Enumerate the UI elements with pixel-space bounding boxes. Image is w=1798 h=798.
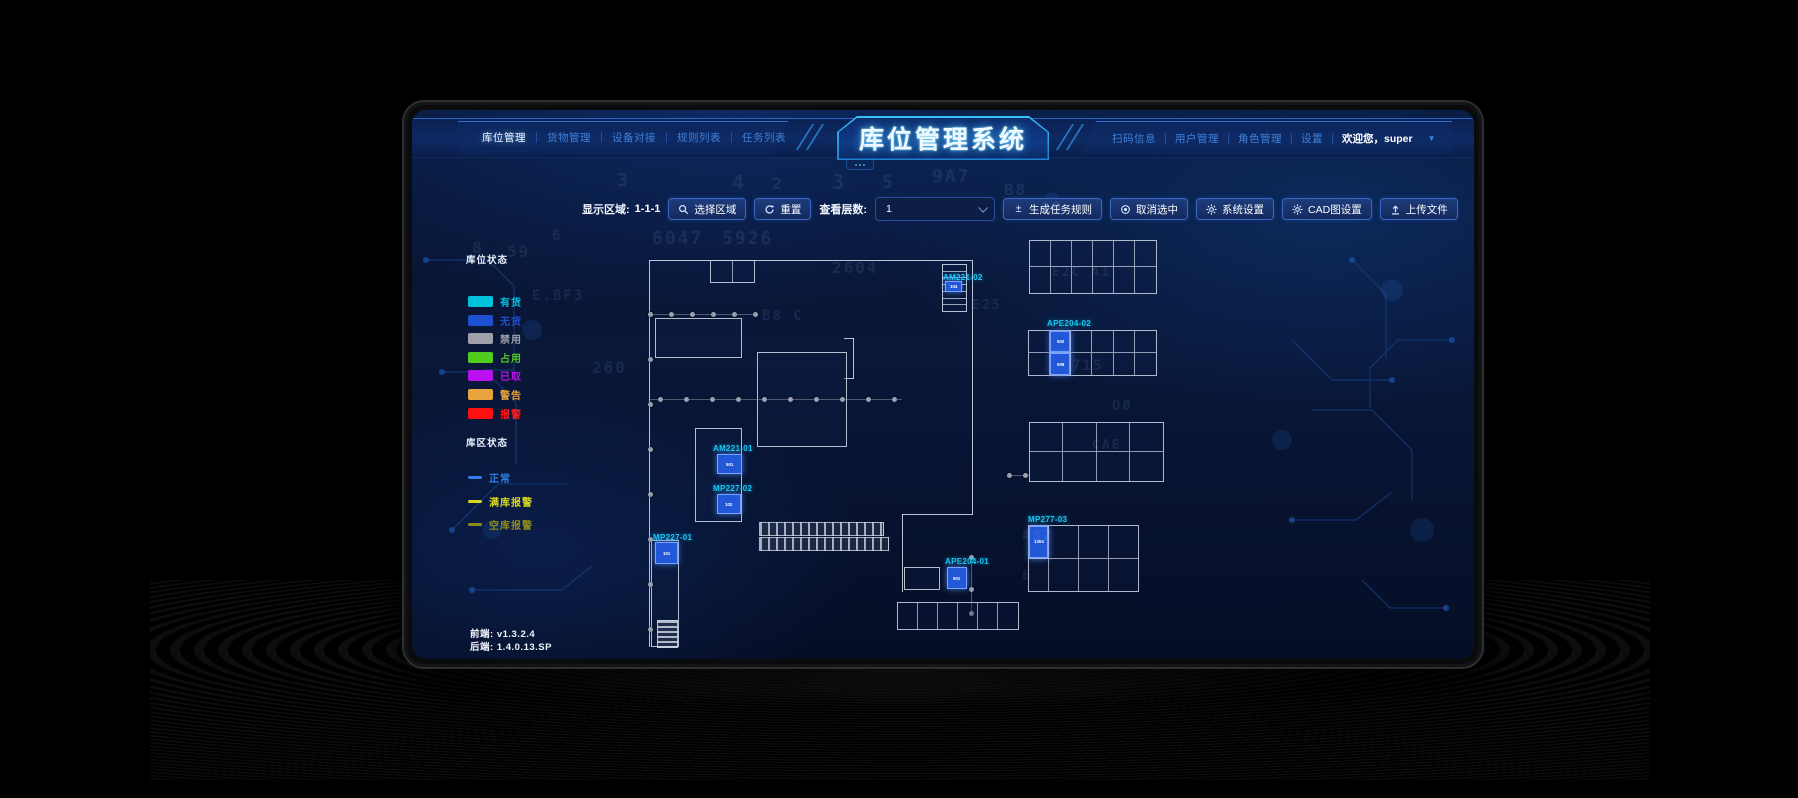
slot-cell-value: 102 bbox=[725, 502, 732, 507]
conveyor-node bbox=[1007, 473, 1012, 478]
rack-grid-mp277-03-cell[interactable] bbox=[1109, 559, 1138, 592]
rack-grid-mp277-03-cell[interactable] bbox=[1079, 559, 1109, 592]
highlighted-slot[interactable]: 102 bbox=[717, 494, 741, 514]
conveyor-line bbox=[650, 314, 755, 315]
monitor-frame: 库位管理货物管理设备对接规则列表任务列表 库位管理系统 扫码信息用户管理角色管理… bbox=[402, 100, 1484, 669]
rack-ladder-rung bbox=[943, 299, 966, 306]
highlighted-slot[interactable]: 101 bbox=[655, 542, 678, 564]
conveyor-node bbox=[710, 397, 715, 402]
rack-grid-east-cell[interactable] bbox=[1097, 452, 1130, 481]
conveyor-node bbox=[969, 587, 974, 592]
plan-wall bbox=[972, 260, 973, 514]
plan-wall bbox=[649, 260, 650, 647]
rack-grid-northeast-cell[interactable] bbox=[1030, 267, 1051, 293]
striped-rack bbox=[657, 620, 678, 648]
rack-grid-northeast-cell[interactable] bbox=[1114, 267, 1135, 293]
conveyor-node bbox=[669, 312, 674, 317]
page-background: 库位管理货物管理设备对接规则列表任务列表 库位管理系统 扫码信息用户管理角色管理… bbox=[0, 0, 1798, 798]
striped-rack bbox=[759, 522, 884, 536]
rack-grid-east bbox=[1029, 422, 1164, 482]
rack-grid-south-cell[interactable] bbox=[918, 603, 938, 629]
rack-grid-east-cell[interactable] bbox=[1097, 423, 1130, 452]
slot-cell-value: 901 bbox=[953, 576, 960, 581]
location-label: MP227-02 bbox=[713, 484, 752, 493]
rack-grid-east-cell[interactable] bbox=[1030, 452, 1063, 481]
rack-grid-northeast-cell[interactable] bbox=[1072, 241, 1093, 267]
conveyor-node bbox=[648, 402, 653, 407]
conveyor-node bbox=[648, 627, 653, 632]
location-label: APE204-01 bbox=[945, 557, 989, 566]
rack-grid-mp277-03-cell[interactable] bbox=[1049, 526, 1079, 559]
backend-version-label: 后端: bbox=[470, 642, 494, 653]
rack-grid-ape204-02-cell[interactable] bbox=[1071, 331, 1092, 353]
conveyor-node bbox=[684, 397, 689, 402]
rack-grid-ape204-02-cell[interactable]: 508 bbox=[1050, 353, 1071, 375]
slot-cell-value: 501 bbox=[726, 462, 733, 467]
rack-grid-mp277-03-cell[interactable] bbox=[1079, 526, 1109, 559]
floor-plan: 5025081304AM221-02APE204-02AM221-01MP227… bbox=[412, 110, 1474, 659]
conveyor-node bbox=[736, 397, 741, 402]
slot-cell-value: 508 bbox=[1057, 362, 1064, 367]
rack-grid-south-cell[interactable] bbox=[958, 603, 978, 629]
rack-grid-northeast-cell[interactable] bbox=[1051, 241, 1072, 267]
location-label: APE204-02 bbox=[1047, 319, 1091, 328]
conveyor-node bbox=[732, 312, 737, 317]
slot-cell-value: 502 bbox=[1057, 339, 1064, 344]
location-label: AM221-01 bbox=[713, 444, 753, 453]
striped-rack bbox=[759, 537, 889, 551]
highlighted-slot[interactable]: 901 bbox=[947, 567, 967, 589]
rack-grid-northeast-cell[interactable] bbox=[1135, 267, 1156, 293]
conveyor-node bbox=[892, 397, 897, 402]
conveyor-node bbox=[711, 312, 716, 317]
conveyor-node bbox=[648, 492, 653, 497]
rack-ladder-rung bbox=[943, 265, 966, 272]
rack-grid-south-cell[interactable] bbox=[978, 603, 998, 629]
location-label: MP277-03 bbox=[1028, 515, 1067, 524]
rack-grid-ape204-02-cell[interactable] bbox=[1071, 353, 1092, 375]
conveyor-node bbox=[840, 397, 845, 402]
plan-wall bbox=[649, 260, 972, 261]
frontend-version-label: 前端: bbox=[470, 629, 494, 640]
rack-grid-northeast-cell[interactable] bbox=[1093, 241, 1114, 267]
plan-room-outline bbox=[710, 260, 755, 283]
rack-grid-ape204-02-cell[interactable] bbox=[1092, 353, 1113, 375]
conveyor-node bbox=[1023, 473, 1028, 478]
highlighted-slot[interactable]: 501 bbox=[717, 454, 742, 474]
slot-cell-value: 104 bbox=[950, 284, 957, 289]
rack-grid-south-cell[interactable] bbox=[898, 603, 918, 629]
rack-grid-east-cell[interactable] bbox=[1063, 423, 1096, 452]
rack-grid-ape204-02-cell[interactable] bbox=[1114, 331, 1135, 353]
rack-grid-east-cell[interactable] bbox=[1130, 452, 1163, 481]
rack-ladder-rung bbox=[943, 292, 966, 299]
rack-grid-ape204-02-cell[interactable]: 502 bbox=[1050, 331, 1071, 353]
conveyor-node bbox=[753, 312, 758, 317]
rack-grid-northeast-cell[interactable] bbox=[1072, 267, 1093, 293]
conveyor-node bbox=[648, 312, 653, 317]
conveyor-node bbox=[814, 397, 819, 402]
rack-grid-ape204-02-cell[interactable] bbox=[1135, 331, 1156, 353]
slot-cell-value: 101 bbox=[663, 551, 670, 556]
rack-grid-northeast-cell[interactable] bbox=[1051, 267, 1072, 293]
conveyor-node bbox=[788, 397, 793, 402]
plan-wall bbox=[902, 514, 903, 592]
slot-cell-value: 1304 bbox=[1034, 539, 1044, 544]
rack-grid-mp277-03-cell[interactable]: 1304 bbox=[1029, 526, 1049, 559]
plan-room-outline bbox=[904, 567, 940, 590]
conveyor-node bbox=[648, 447, 653, 452]
rack-grid-ape204-02: 502508 bbox=[1028, 330, 1157, 376]
plan-wall bbox=[902, 514, 973, 515]
rack-grid-northeast-cell[interactable] bbox=[1093, 267, 1114, 293]
app-screen: 库位管理货物管理设备对接规则列表任务列表 库位管理系统 扫码信息用户管理角色管理… bbox=[412, 110, 1474, 659]
version-info: 前端: v1.3.2.4 后端: 1.4.0.13.SP bbox=[470, 628, 552, 654]
conveyor-node bbox=[690, 312, 695, 317]
rack-ladder-rung bbox=[943, 305, 966, 311]
conveyor-node bbox=[648, 357, 653, 362]
rack-grid-northeast-cell[interactable] bbox=[1114, 241, 1135, 267]
conveyor-node bbox=[762, 397, 767, 402]
rack-grid-ape204-02-cell[interactable] bbox=[1135, 353, 1156, 375]
rack-grid-east-cell[interactable] bbox=[1130, 423, 1163, 452]
frontend-version-value: v1.3.2.4 bbox=[497, 629, 535, 640]
backend-version-value: 1.4.0.13.SP bbox=[497, 642, 552, 653]
rack-grid-south-cell[interactable] bbox=[998, 603, 1018, 629]
rack-grid-east-cell[interactable] bbox=[1030, 423, 1063, 452]
conveyor-node bbox=[866, 397, 871, 402]
rack-grid-south bbox=[897, 602, 1019, 630]
plan-wall bbox=[853, 338, 854, 379]
rack-grid-northeast bbox=[1029, 240, 1157, 294]
rack-grid-mp277-03: 1304 bbox=[1028, 525, 1139, 592]
rack-grid-mp277-03-cell[interactable] bbox=[1029, 559, 1049, 592]
rack-grid-northeast-cell[interactable] bbox=[1135, 241, 1156, 267]
rack-grid-east-cell[interactable] bbox=[1063, 452, 1096, 481]
plan-room-outline bbox=[655, 318, 742, 358]
location-label: MP227-01 bbox=[653, 533, 692, 542]
rack-grid-ape204-02-cell[interactable] bbox=[1029, 331, 1050, 353]
rack-grid-ape204-02-cell[interactable] bbox=[1029, 353, 1050, 375]
conveyor-node bbox=[658, 397, 663, 402]
rack-grid-mp277-03-cell[interactable] bbox=[1109, 526, 1138, 559]
rack-grid-northeast-cell[interactable] bbox=[1030, 241, 1051, 267]
rack-grid-ape204-02-cell[interactable] bbox=[1114, 353, 1135, 375]
rack-grid-mp277-03-cell[interactable] bbox=[1049, 559, 1079, 592]
highlighted-slot[interactable]: 104 bbox=[945, 281, 962, 292]
rack-grid-south-cell[interactable] bbox=[938, 603, 958, 629]
conveyor-node bbox=[648, 582, 653, 587]
rack-grid-ape204-02-cell[interactable] bbox=[1092, 331, 1113, 353]
